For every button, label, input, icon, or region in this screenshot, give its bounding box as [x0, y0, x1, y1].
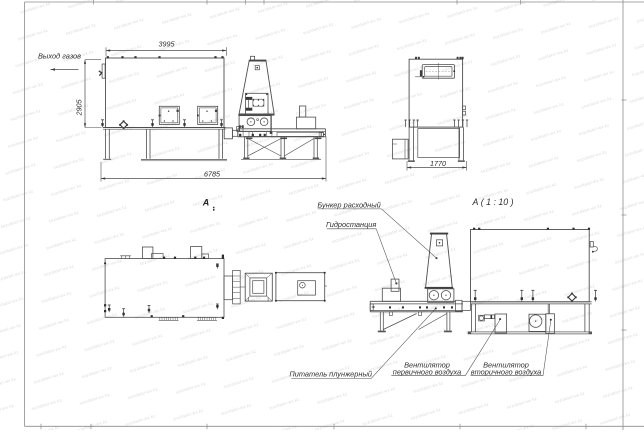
- svg-text:А ( 1 : 10 ): А ( 1 : 10 ): [471, 197, 513, 207]
- svg-text:вторичного воздуха: вторичного воздуха: [471, 367, 541, 376]
- svg-text:3995: 3995: [159, 39, 176, 48]
- svg-text:1770: 1770: [430, 159, 446, 168]
- svg-text:Питатель плунжерный: Питатель плунжерный: [289, 370, 372, 379]
- svg-text:Бункер расходный: Бункер расходный: [317, 201, 380, 210]
- svg-text:Гидростанция: Гидростанция: [326, 220, 376, 229]
- svg-text:6785: 6785: [204, 170, 221, 179]
- svg-text:2905: 2905: [75, 99, 84, 117]
- svg-text:А: А: [202, 198, 210, 208]
- svg-text:Выход газов: Выход газов: [38, 52, 81, 61]
- svg-text:первичного воздуха: первичного воздуха: [393, 367, 461, 376]
